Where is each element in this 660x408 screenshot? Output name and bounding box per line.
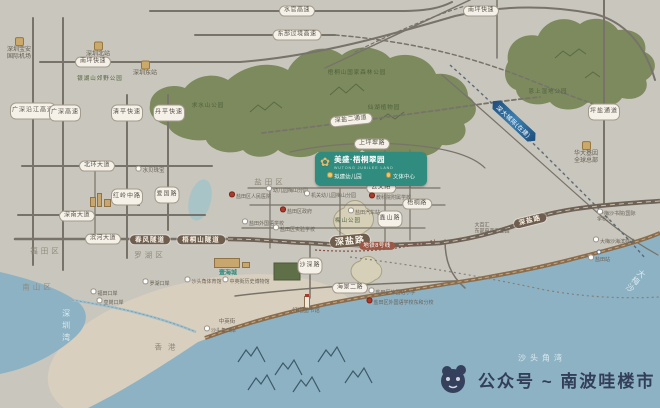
label-text: 沙头角口岸	[211, 328, 236, 334]
label-text: 南坪快速	[468, 8, 494, 14]
label-futian-district: 福田区	[30, 248, 62, 257]
label-yantian-district-government: 盐田区政府	[280, 206, 312, 215]
project-logo-flower-icon: ✿	[320, 156, 330, 168]
marker-dot-icon	[142, 278, 148, 284]
label-text: 南坪快速	[80, 59, 106, 65]
label-text: 中英街历史博物馆	[229, 279, 269, 285]
label-text: 盐田区政府	[287, 209, 312, 215]
label-text: 盐田区人民医院	[236, 194, 271, 200]
label-text: 福田区	[30, 247, 62, 256]
red-marker-dot-icon	[229, 191, 235, 197]
marker-dot-icon	[593, 236, 599, 242]
label-dabaihui-ecommerce-park: 大百汇 东部电商产业园	[474, 223, 509, 235]
label-shatoujiao-gymnasium: 沙头角体育馆	[184, 276, 221, 285]
label-text: 深圳北站	[86, 52, 110, 58]
label-wutongshan-tunnel: 梧桐山隧道	[177, 235, 225, 244]
landmark-icon	[14, 37, 23, 46]
marker-dot-icon	[242, 218, 248, 224]
label-text: 梧桐山隧道	[182, 236, 220, 243]
label-text: 春风隧道	[135, 236, 165, 243]
label-text: 东部过境高速	[277, 32, 316, 38]
marker-dot-icon	[222, 276, 228, 282]
label-yantian-peoples-hospital: 盐田区人民医院	[229, 191, 271, 200]
bullet-dot-icon	[386, 172, 392, 178]
label-chunfeng-tunnel: 春风隧道	[130, 235, 170, 244]
landmark-icon	[93, 42, 102, 51]
label-text: 广深高速	[51, 110, 79, 116]
label-text: 深盐二通道	[334, 115, 367, 124]
landmark-icon	[581, 141, 590, 150]
label-luohu-checkpoint: 罗湖口岸	[142, 278, 169, 287]
label-text: 盐田汽车站	[355, 210, 380, 216]
marker-dot-icon	[90, 288, 96, 294]
label-zhongyingjie: 中英街	[219, 319, 236, 325]
label-text: 幼儿园梅山分园	[273, 188, 308, 194]
label-text: 华大基因 全球总部	[574, 151, 598, 164]
marker-dot-icon	[273, 224, 279, 230]
label-yantian-bus-station: 盐田汽车站	[348, 207, 380, 216]
label-shenzhen-east-station: 深圳东站	[133, 61, 157, 78]
label-text: 恩上湿地公园	[528, 89, 567, 95]
label-text: 沙头角体育馆	[191, 279, 221, 285]
label-guangshen-expwy: 广深高速	[49, 105, 81, 122]
label-text: 滨河大道	[90, 236, 116, 242]
project-bullet-kindergarten: 拟建幼儿园	[327, 172, 362, 181]
label-text: 盐田站	[595, 257, 610, 263]
label-meisha-academy: 梅沙书院(国际学校)	[597, 209, 639, 224]
label-text: 坪盐通道	[590, 109, 618, 115]
label-text: 深圳宝安 国际机场	[7, 47, 31, 60]
label-text: 红岭中路	[113, 194, 141, 200]
label-text: 深圳东站	[133, 71, 157, 77]
label-pingyan-passage: 坪盐通道	[588, 104, 620, 121]
label-hongkong: 香港	[155, 344, 182, 353]
label-eastern-transit-expwy: 东部过境高速	[272, 30, 321, 41]
label-text: 仙湖植物园	[368, 105, 401, 111]
label-text: 水贝珠宝	[142, 168, 164, 174]
label-text: 盐田区外国语学校东和分校	[373, 300, 433, 306]
label-shatoujiao-checkpoint: 沙头角口岸	[204, 325, 236, 334]
label-xinshan-road: 鑫山路	[377, 211, 402, 228]
project-subtitle: WUTONG JUBILEE LAND	[334, 165, 394, 170]
landmark-icon	[140, 61, 149, 70]
label-text: 深圳湾	[62, 309, 71, 345]
label-text: 上坪翠路	[359, 141, 385, 147]
label-jiaokeyuan-affiliated-school: 教科院附属学校	[369, 192, 411, 201]
label-text: 福田口岸	[97, 291, 117, 297]
label-text: 鑫山路	[379, 216, 400, 222]
marker-dot-icon	[368, 287, 374, 293]
project-title: 美盛·梧桐翠园	[334, 154, 400, 165]
marker-dot-icon	[204, 325, 210, 331]
label-text: 求水山公园	[192, 103, 225, 109]
label-shennan-avenue: 深南大道	[59, 211, 95, 222]
label-yantian-station: 盐田站	[588, 254, 610, 263]
central-park-square	[274, 263, 300, 280]
label-text: 丹平快速	[155, 110, 183, 116]
label-yantian-experimental-school: 盐田区实验学校	[273, 224, 315, 233]
label-aiguo-road: 爱国路	[154, 187, 179, 204]
label-text: 盐田区实验学校	[280, 227, 315, 233]
label-luohu-district: 罗湖区	[134, 252, 166, 261]
label-text: 灯塔图书馆	[292, 308, 320, 314]
label-yantian-foreign-primary-school: 盐田区外国语小学	[368, 287, 415, 296]
label-text: 盐田区外国语小学	[375, 290, 415, 296]
label-nanping-expwy-east: 南坪快速	[463, 6, 499, 17]
label-text: 银湖山郊野公园	[77, 76, 123, 82]
label-shashen-road: 沙深路	[297, 258, 322, 275]
label-shuiguan-expwy: 水官高速	[279, 6, 315, 17]
watermark-text: 公众号 ~ 南波哇楼市	[478, 367, 655, 392]
yihai-city-annex	[242, 262, 250, 268]
marker-dot-icon	[304, 190, 310, 196]
label-jiguan-kindergarten-meishan: 机关幼儿园梅山分园	[304, 190, 356, 199]
label-nanshan-district: 南山区	[22, 284, 54, 293]
label-futian-checkpoint: 福田口岸	[90, 288, 117, 297]
label-text: 罗湖口岸	[149, 281, 169, 287]
label-baoan-airport: 深圳宝安 国际机场	[7, 37, 31, 61]
red-marker-dot-icon	[280, 206, 286, 212]
label-danping-expwy: 丹平快速	[153, 105, 185, 122]
bullet-dot-icon	[327, 172, 333, 178]
label-zhongyingjie-history-museum: 中英街历史博物馆	[222, 276, 269, 285]
label-yantian-foreign-school-donghe: 盐田区外国语学校东和分校	[366, 297, 433, 306]
label-bgi-global-hq: 华大基因 全球总部	[574, 141, 598, 165]
marker-dot-icon	[588, 254, 594, 260]
label-shangpingcui-road: 上坪翠路	[354, 139, 390, 150]
label-yinhushan-country-park: 银湖山郊野公园	[77, 76, 123, 82]
marker-dot-icon	[184, 276, 190, 282]
marker-dot-icon	[96, 297, 102, 303]
label-shenzhen-north-station: 深圳北站	[86, 42, 110, 59]
label-hongling-mid-road: 红岭中路	[111, 189, 143, 206]
label-text: 梅山公园	[335, 218, 361, 224]
label-text: 北环大道	[84, 163, 110, 169]
label-text: 大梅沙海滨栈道	[600, 239, 635, 245]
label-binhe-avenue: 滨河大道	[85, 234, 121, 245]
label-shuibei-jewelry: 水贝珠宝	[135, 166, 164, 175]
label-qingping-expwy: 清平快速	[111, 105, 143, 122]
label-shenzhen-bay: 深圳湾	[61, 309, 70, 345]
label-text: 罗湖区	[134, 251, 166, 260]
project-card: ✿ 美盛·梧桐翠园 WUTONG JUBILEE LAND 拟建幼儿园 文体中心	[315, 152, 427, 186]
label-text: 广深沿江高速	[12, 108, 54, 114]
label-text: 大百汇 东部电商产业园	[474, 222, 509, 234]
marker-dot-icon	[597, 209, 603, 215]
label-text: 皇岗口岸	[103, 300, 123, 306]
label-enshang-wetland-park: 恩上湿地公园	[528, 89, 567, 95]
label-text: 教科院附属学校	[376, 195, 411, 201]
label-wutongshan-forest-park: 梧桐山国家森林公园	[328, 70, 387, 76]
cbd-building-2	[97, 193, 102, 207]
label-text: 梅沙书院(国际学校)	[597, 211, 636, 223]
label-yantian-district: 盐田区	[254, 179, 286, 188]
label-text: 香港	[155, 343, 182, 352]
label-text: 盐田区	[254, 178, 286, 187]
yihai-city-building	[214, 258, 240, 268]
label-text: 沙深路	[299, 263, 320, 269]
label-text: 梧桐山国家森林公园	[328, 70, 387, 76]
label-text: 南山区	[22, 283, 54, 292]
label-qiushuishan-park: 求水山公园	[192, 103, 225, 109]
label-text: 清平快速	[113, 110, 141, 116]
label-beihuan-avenue: 北环大道	[79, 161, 115, 172]
label-meishan-park: 梅山公园	[335, 218, 361, 224]
label-text: 中英街	[219, 319, 236, 325]
label-dameisha-boardwalk: 大梅沙海滨栈道	[593, 236, 635, 245]
label-fairylake-botanical-garden: 仙湖植物园	[368, 105, 401, 111]
watermark-logo	[436, 362, 470, 396]
marker-dot-icon	[135, 166, 141, 172]
watermark: 公众号 ~ 南波哇楼市	[436, 362, 655, 396]
label-haijing-2nd-road: 海景二路	[332, 283, 368, 294]
label-huanggang-checkpoint: 皇岗口岸	[96, 297, 123, 306]
red-marker-dot-icon	[366, 297, 372, 303]
label-text: 地铁8号线	[363, 243, 391, 249]
project-bullet-culture-center: 文体中心	[386, 172, 415, 181]
label-metro-line-8: 地铁8号线	[359, 242, 395, 250]
label-text: 海景二路	[337, 285, 363, 291]
label-lighthouse-library: 灯塔图书馆	[292, 308, 320, 314]
cbd-building-1	[90, 197, 96, 207]
marker-dot-icon	[348, 207, 354, 213]
label-text: 水官高速	[284, 8, 310, 14]
map-canvas: ✿ 美盛·梧桐翠园 WUTONG JUBILEE LAND 拟建幼儿园 文体中心…	[0, 0, 660, 408]
label-text: 机关幼儿园梅山分园	[311, 193, 356, 199]
label-text: 深南大道	[64, 213, 90, 219]
label-text: 爱国路	[156, 192, 177, 198]
cbd-building-3	[104, 199, 111, 207]
red-marker-dot-icon	[369, 192, 375, 198]
